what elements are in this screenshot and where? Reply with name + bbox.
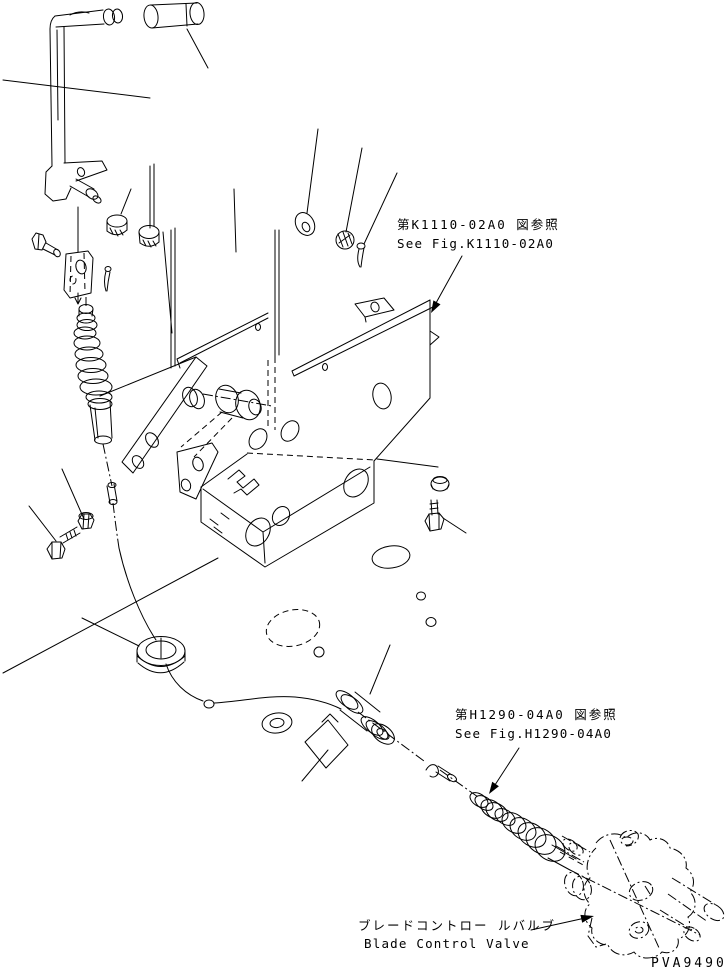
k1110-callout-jp: 第K1110-02A0 図参照 <box>397 217 560 232</box>
split-pin <box>357 173 397 267</box>
k1110-callout-en: See Fig.K1110-02A0 <box>397 236 554 251</box>
flange-nut <box>431 477 449 492</box>
mounting-bracket <box>122 228 439 567</box>
fastener-cluster <box>32 164 236 333</box>
control-cable <box>113 503 341 709</box>
blade-control-linkage-diagram: 第K1110-02A0 図参照 See Fig.K1110-02A0 第H129… <box>0 0 727 974</box>
clevis-yoke <box>64 251 93 304</box>
hex-nut <box>78 513 94 530</box>
panel-edge-line <box>3 558 218 673</box>
cable-end-assembly <box>426 765 585 870</box>
grommet-leader-line <box>82 618 139 646</box>
knob-leader-line <box>187 29 208 68</box>
bolt-leader-line <box>29 506 56 541</box>
lever-knob <box>143 2 208 68</box>
hex-bolt <box>47 527 80 559</box>
control-lever <box>3 8 150 204</box>
callout-arrows <box>431 256 594 930</box>
nut-b <box>139 164 236 333</box>
nut-leader-line <box>62 469 84 519</box>
retainer-clip <box>228 470 259 495</box>
valve-label-en: Blade Control Valve <box>364 936 530 951</box>
boot-leader-line <box>100 357 196 396</box>
valve-label-jp: ブレードコントロー ルバルブ <box>358 918 556 933</box>
h1290-callout-jp: 第H1290-04A0 図参照 <box>455 707 618 722</box>
grommet <box>137 637 185 673</box>
h1290-arrow <box>489 748 519 794</box>
hatched-nut <box>336 148 362 249</box>
boot-bellows <box>74 297 196 444</box>
flange-bolt <box>425 500 444 531</box>
k1110-arrow <box>431 256 462 313</box>
h1290-callout-en: See Fig.H1290-04A0 <box>455 726 612 741</box>
rod-and-fasteners <box>29 444 117 559</box>
bellcrank-hub <box>180 382 272 457</box>
cable-clamp <box>302 645 424 781</box>
blade-control-valve <box>556 831 727 958</box>
clamp-leader-top <box>370 645 390 694</box>
parts-diagram-page: 第K1110-02A0 図参照 See Fig.K1110-02A0 第H129… <box>0 0 727 974</box>
nut-a <box>107 189 131 236</box>
washer-nut-pin-set <box>291 129 397 267</box>
cotter-pin <box>105 267 112 292</box>
figure-code: PVA9490 <box>651 956 727 971</box>
washer <box>291 129 318 239</box>
bolt-small <box>32 233 62 258</box>
bracket-bolt-nut <box>377 459 466 533</box>
lever-leader-line <box>3 80 150 98</box>
floor-and-grommet <box>3 543 436 735</box>
floor-washer <box>261 711 293 735</box>
